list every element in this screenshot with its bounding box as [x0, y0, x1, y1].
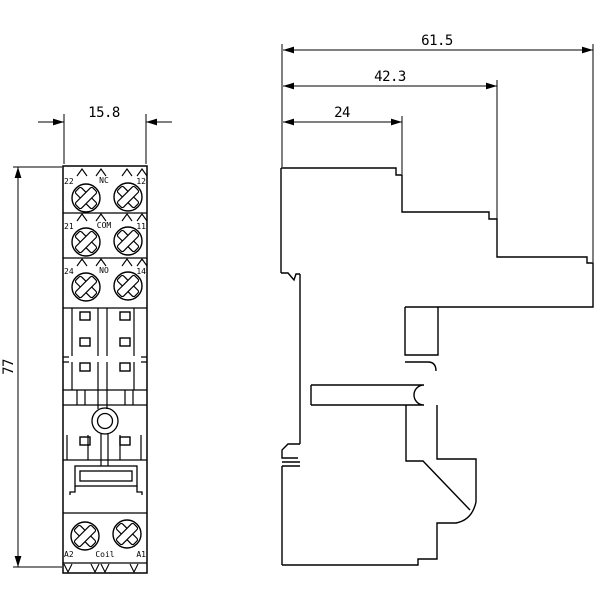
din-rail-slot — [311, 385, 424, 405]
dim-arrow — [283, 47, 294, 54]
retaining-clip — [70, 466, 142, 495]
dim-width-label: 15.8 — [88, 105, 120, 121]
center-hole-inner — [98, 414, 113, 429]
terminal-label: 14 — [136, 267, 146, 276]
coil-terminal-label: A2 — [64, 550, 74, 559]
dim-arrow — [283, 119, 294, 126]
screw-icon — [72, 273, 100, 301]
dim-arrow — [15, 556, 22, 567]
side-din-clip-edge — [281, 168, 300, 565]
dim-depth-total-lines — [282, 44, 593, 262]
front-view: 22 NC 12 21 COM 11 24 NO 14 A2 Coil A1 — [63, 166, 147, 573]
dim-depth-body-label: 42.3 — [374, 69, 406, 85]
coil-terminal-label: A1 — [136, 550, 146, 559]
dim-arrow — [53, 119, 64, 126]
screw-icon — [72, 228, 100, 256]
side-release-slot — [406, 405, 470, 510]
dim-arrow — [391, 119, 402, 126]
side-latch — [405, 362, 436, 371]
screw-icon — [114, 227, 142, 255]
side-upper-outline — [281, 168, 593, 307]
dim-depth-total-label: 61.5 — [421, 33, 453, 49]
dim-arrow — [486, 83, 497, 90]
terminal-label: 22 — [64, 177, 74, 186]
dim-arrow — [582, 47, 593, 54]
screw-icon — [114, 183, 142, 211]
contact-slots — [80, 312, 130, 445]
socket-compartment-lines — [63, 308, 147, 466]
dim-height-label: 77 — [1, 359, 17, 375]
terminal-label: NC — [99, 176, 109, 185]
coil-terminal-label: Coil — [95, 550, 114, 559]
relay-socket-dimensional-drawing: 22 NC 12 21 COM 11 24 NO 14 A2 Coil A1 — [0, 0, 600, 600]
terminal-label: 24 — [64, 267, 74, 276]
dim-height-lines — [13, 167, 62, 567]
terminal-label: NO — [99, 266, 109, 275]
dim-depth-body-lines — [283, 80, 497, 219]
dim-arrow — [146, 119, 157, 126]
screw-icon — [114, 272, 142, 300]
terminal-label: 11 — [136, 222, 146, 231]
terminal-label: COM — [97, 221, 112, 230]
terminal-label: 12 — [136, 177, 146, 186]
dim-arrow — [15, 167, 22, 178]
screw-icon — [71, 522, 99, 550]
screw-icon — [72, 184, 100, 212]
side-mounting-tab — [405, 307, 438, 355]
screw-icon — [113, 520, 141, 548]
bottom-vee-marks — [64, 564, 138, 572]
dim-arrow — [283, 83, 294, 90]
side-view — [281, 168, 593, 565]
dim-depth-front-lines — [283, 116, 402, 174]
technical-drawing: 22 NC 12 21 COM 11 24 NO 14 A2 Coil A1 — [0, 0, 600, 600]
center-hole-outer — [92, 408, 118, 434]
terminal-label: 21 — [64, 222, 74, 231]
dim-depth-front-label: 24 — [334, 105, 350, 121]
